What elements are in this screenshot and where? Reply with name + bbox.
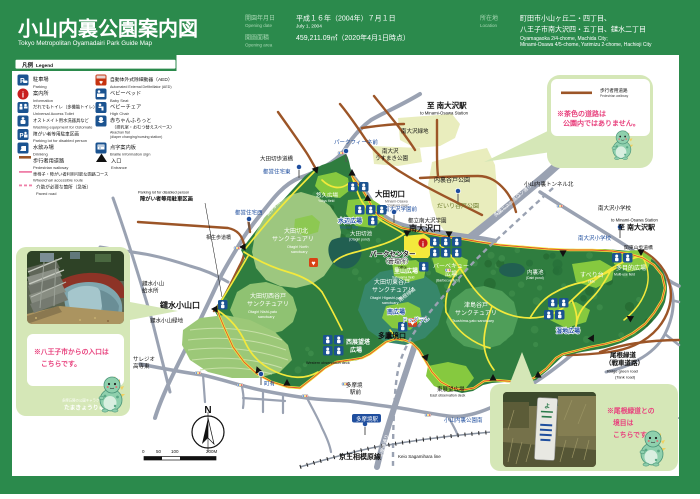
svg-text:うすまき公園: うすまき公園 [375, 155, 409, 162]
svg-text:大田切西谷戸: 大田切西谷戸 [250, 292, 286, 300]
svg-text:町有: 町有 [264, 380, 276, 388]
svg-text:sanctuary: sanctuary [382, 301, 399, 305]
svg-text:Opening date: Opening date [245, 23, 273, 28]
svg-text:Satoyama field: Satoyama field [392, 276, 415, 280]
svg-text:水飲み場: 水飲み場 [33, 143, 54, 151]
svg-text:よ: よ [544, 403, 550, 410]
svg-text:至 南大沢駅: 至 南大沢駅 [427, 100, 467, 110]
svg-text:Office: Office [398, 266, 407, 270]
svg-text:だれでもトイレ（多機能トイレ）: だれでもトイレ（多機能トイレ） [33, 104, 97, 111]
svg-text:介助が必要な箇所（急坂）: 介助が必要な箇所（急坂） [36, 184, 91, 191]
svg-text:小山内裏トンネル北: 小山内裏トンネル北 [524, 180, 574, 188]
svg-text:サレジオ: サレジオ [133, 356, 155, 363]
svg-text:Braille information sign: Braille information sign [110, 152, 150, 157]
svg-text:Pedestrian walkway: Pedestrian walkway [600, 94, 629, 98]
svg-text:内裏池: 内裏池 [527, 268, 544, 276]
svg-text:広場: 広場 [350, 346, 362, 354]
svg-text:大田切池: 大田切池 [350, 230, 373, 238]
svg-text:悠久広場: 悠久広場 [316, 191, 339, 199]
svg-text:南大沢小学校: 南大沢小学校 [578, 234, 612, 242]
svg-text:i: i [422, 242, 424, 249]
svg-text:関東山歩道橋: 関東山歩道橋 [624, 244, 653, 251]
svg-text:200M: 200M [206, 449, 218, 454]
svg-text:Automated External Defibrillat: Automated External Defibrillator (AED) [110, 85, 172, 89]
svg-text:津島谷戸: 津島谷戸 [464, 301, 488, 309]
svg-text:Opening area: Opening area [245, 43, 273, 48]
svg-text:駐車場: 駐車場 [33, 75, 49, 83]
svg-text:Western observation deck: Western observation deck [306, 361, 350, 365]
svg-text:※八王子市からの入口は: ※八王子市からの入口は [34, 347, 109, 356]
svg-text:Akachan flat: Akachan flat [110, 131, 130, 135]
svg-text:多摩境駅: 多摩境駅 [356, 415, 379, 423]
svg-text:Minami-Osawa 4/5-chome, Yarimi: Minami-Osawa 4/5-chome, Yarimizu 2-chome… [520, 42, 652, 48]
svg-text:入口: 入口 [111, 158, 121, 165]
svg-text:相生歩道橋: 相生歩道橋 [206, 234, 231, 241]
svg-text:南大沢学園前: 南大沢学園前 [384, 205, 418, 213]
svg-text:P: P [20, 134, 24, 140]
svg-text:障がい者等用駐車区画: 障がい者等用駐車区画 [140, 195, 193, 203]
svg-text:内裏谷戸公園: 内裏谷戸公園 [434, 176, 470, 184]
svg-text:(Otagiri pond): (Otagiri pond) [349, 238, 370, 242]
svg-text:Wheelchair accessible route: Wheelchair accessible route [33, 178, 84, 183]
svg-text:点字案内板: 点字案内板 [110, 143, 137, 151]
svg-text:Legend: Legend [36, 63, 53, 69]
svg-text:多摩境口: 多摩境口 [378, 331, 406, 340]
svg-text:東展望広場: 東展望広場 [437, 385, 465, 393]
svg-text:境目は: 境目は [613, 418, 634, 427]
svg-text:すべり台: すべり台 [580, 271, 604, 279]
svg-text:（戦車道路）: （戦車道路） [605, 358, 644, 367]
svg-text:ドッグラン: ドッグラン [402, 316, 430, 324]
svg-text:459,211.09㎡（2020年4月1日時点）: 459,211.09㎡（2020年4月1日時点） [296, 33, 410, 42]
svg-text:赤ちゃんふらっと: 赤ちゃんふらっと [110, 117, 152, 124]
svg-text:※茶色の道路は: ※茶色の道路は [557, 109, 606, 118]
svg-text:Information: Information [33, 98, 53, 103]
svg-text:こちらです。: こちらです。 [41, 360, 81, 368]
svg-text:サンクチュアリ: サンクチュアリ [272, 236, 314, 243]
svg-text:Yukyu field: Yukyu field [318, 199, 335, 203]
svg-text:to Minami-Osawa Station: to Minami-Osawa Station [611, 218, 658, 223]
svg-text:Parking: Parking [33, 84, 47, 89]
svg-text:（管理所）: （管理所） [382, 258, 412, 266]
svg-text:車椅子・障がい者利用可能な園路コース: 車椅子・障がい者利用可能な園路コース [33, 171, 108, 178]
svg-text:sanctuary: sanctuary [258, 315, 275, 319]
svg-text:Otagiri Higashi-yato: Otagiri Higashi-yato [370, 296, 403, 300]
svg-text:大田切北: 大田切北 [284, 227, 308, 235]
svg-text:西展望塔: 西展望塔 [346, 338, 371, 346]
svg-text:♥: ♥ [99, 80, 103, 87]
svg-text:多摩境: 多摩境 [346, 381, 363, 389]
svg-text:(Barbecue field): (Barbecue field) [436, 279, 460, 283]
svg-text:Drinking: Drinking [33, 152, 48, 157]
svg-text:パークセンター: パークセンター [370, 249, 416, 258]
svg-text:小山内裏公園案内図: 小山内裏公園案内図 [18, 17, 198, 41]
svg-text:Ridge green road: Ridge green road [607, 369, 638, 374]
svg-text:南大沢緑地: 南大沢緑地 [401, 127, 429, 135]
svg-text:slide: slide [588, 280, 595, 284]
svg-text:開園面積: 開園面積 [245, 34, 269, 42]
svg-text:Otagiri North: Otagiri North [287, 245, 309, 249]
svg-text:Baby Seat: Baby Seat [110, 98, 129, 103]
svg-text:Tokyo Metropolitan Oyamadairi: Tokyo Metropolitan Oyamadairi Park Guide… [18, 40, 153, 47]
svg-text:八王子市南大沢四・五丁目、鑓水二丁目: 八王子市南大沢四・五丁目、鑓水二丁目 [520, 25, 646, 34]
svg-text:歩行者用道路: 歩行者用道路 [600, 87, 628, 94]
svg-text:南大沢小学校: 南大沢小学校 [598, 204, 632, 212]
svg-text:所在地: 所在地 [480, 14, 498, 22]
svg-text:京王相模原線: 京王相模原線 [339, 452, 381, 461]
svg-text:Location: Location [480, 23, 498, 28]
svg-text:給水所: 給水所 [142, 287, 159, 295]
svg-text:尾根緑道: 尾根緑道 [609, 350, 637, 359]
svg-text:都営住宅西: 都営住宅西 [235, 209, 263, 217]
svg-text:Paved road: Paved road [36, 191, 56, 196]
svg-text:50: 50 [156, 449, 162, 454]
svg-text:小山内裏公園南: 小山内裏公園南 [444, 416, 483, 424]
svg-text:広場: 広場 [445, 270, 457, 278]
svg-text:Keio Sagamihara line: Keio Sagamihara line [398, 454, 441, 459]
svg-text:サンクチュアリ: サンクチュアリ [372, 287, 414, 294]
svg-text:鑓水小山口: 鑓水小山口 [160, 300, 200, 310]
svg-text:バーベキュー: バーベキュー [433, 263, 469, 270]
svg-text:湿地広場: 湿地広場 [556, 327, 580, 335]
svg-text:Otagiri Nishi-yato: Otagiri Nishi-yato [248, 310, 277, 314]
svg-text:凡例: 凡例 [22, 61, 34, 69]
svg-text:July 1, 2004: July 1, 2004 [296, 24, 322, 30]
svg-text:Multi-use field: Multi-use field [614, 273, 635, 277]
svg-text:南大沢口: 南大沢口 [409, 223, 441, 233]
svg-text:to Minami-Osawa Station: to Minami-Osawa Station [420, 111, 469, 116]
svg-text:(Tank road): (Tank road) [615, 375, 636, 380]
svg-text:ベビーチェア: ベビーチェア [110, 103, 141, 111]
svg-text:100: 100 [171, 449, 179, 454]
svg-text:障がい者等用駐車区画: 障がい者等用駐車区画 [33, 131, 79, 138]
svg-text:歩行者用道路: 歩行者用道路 [33, 157, 65, 165]
svg-text:南広場: 南広場 [387, 308, 405, 316]
svg-text:Mizube field: Mizube field [340, 226, 358, 230]
svg-text:ベビーベッド: ベビーベッド [110, 89, 141, 97]
svg-text:開園年月日: 開園年月日 [245, 14, 275, 22]
svg-text:Tsushima-yato sanctuary: Tsushima-yato sanctuary [452, 319, 494, 323]
svg-text:都営住宅東: 都営住宅東 [263, 168, 291, 176]
svg-text:Pedestrian walkway: Pedestrian walkway [33, 165, 68, 170]
svg-text:sanctuary: sanctuary [291, 250, 308, 254]
svg-text:(Dairi pond): (Dairi pond) [526, 276, 544, 280]
svg-text:※尾根緑道との: ※尾根緑道との [607, 406, 655, 415]
svg-text:High Chair: High Chair [110, 111, 130, 116]
svg-text:自動体外式除細動器（AED）: 自動体外式除細動器（AED） [110, 76, 173, 83]
svg-text:鑓水小山: 鑓水小山 [142, 280, 164, 288]
svg-text:オストメイト用水洗器具など: オストメイト用水洗器具など [33, 117, 90, 124]
svg-text:多目的広場: 多目的広場 [616, 264, 646, 272]
svg-text:(diaper changing/nursing stati: (diaper changing/nursing station) [110, 135, 162, 139]
svg-text:Entrance: Entrance [111, 165, 128, 170]
svg-text:Universal Access Toilet: Universal Access Toilet [33, 111, 75, 116]
svg-text:パークフィーネ前: パークフィーネ前 [334, 138, 378, 146]
svg-text:Dog run: Dog run [408, 325, 420, 329]
svg-text:East observation deck: East observation deck [430, 394, 466, 398]
svg-text:南大沢: 南大沢 [382, 147, 399, 155]
svg-text:Parking lot for disabled perso: Parking lot for disabled person [138, 191, 189, 195]
svg-text:Parking lot for disabled perso: Parking lot for disabled person [33, 138, 87, 143]
svg-text:サンクチュアリ: サンクチュアリ [247, 301, 289, 308]
svg-text:だいり谷戸公園: だいり谷戸公園 [437, 202, 479, 210]
svg-text:大田切口: 大田切口 [375, 189, 405, 199]
svg-text:平成１６年（2004年）７月１日: 平成１６年（2004年）７月１日 [296, 14, 396, 23]
svg-text:案内所: 案内所 [33, 89, 49, 97]
svg-text:大田切歩道橋: 大田切歩道橋 [260, 155, 294, 163]
svg-text:（授乳室・おむつ替えスペース）: （授乳室・おむつ替えスペース） [112, 124, 174, 131]
svg-text:鑓水小山緑地: 鑓水小山緑地 [150, 317, 184, 325]
svg-text:駅前: 駅前 [350, 388, 362, 396]
svg-text:Washing equipment for Ostomate: Washing equipment for Ostomate [33, 125, 93, 130]
svg-text:高専東: 高専東 [133, 362, 150, 370]
svg-text:水辺広場: 水辺広場 [338, 217, 362, 225]
svg-text:至 南大沢駅: 至 南大沢駅 [618, 223, 656, 232]
svg-text:町田市小山ヶ丘二・四丁目、: 町田市小山ヶ丘二・四丁目、 [520, 14, 611, 23]
svg-text:i: i [22, 91, 24, 100]
svg-text:サンクチュアリ: サンクチュアリ [455, 310, 497, 317]
svg-text:公園内ではありません。: 公園内ではありません。 [563, 119, 640, 128]
